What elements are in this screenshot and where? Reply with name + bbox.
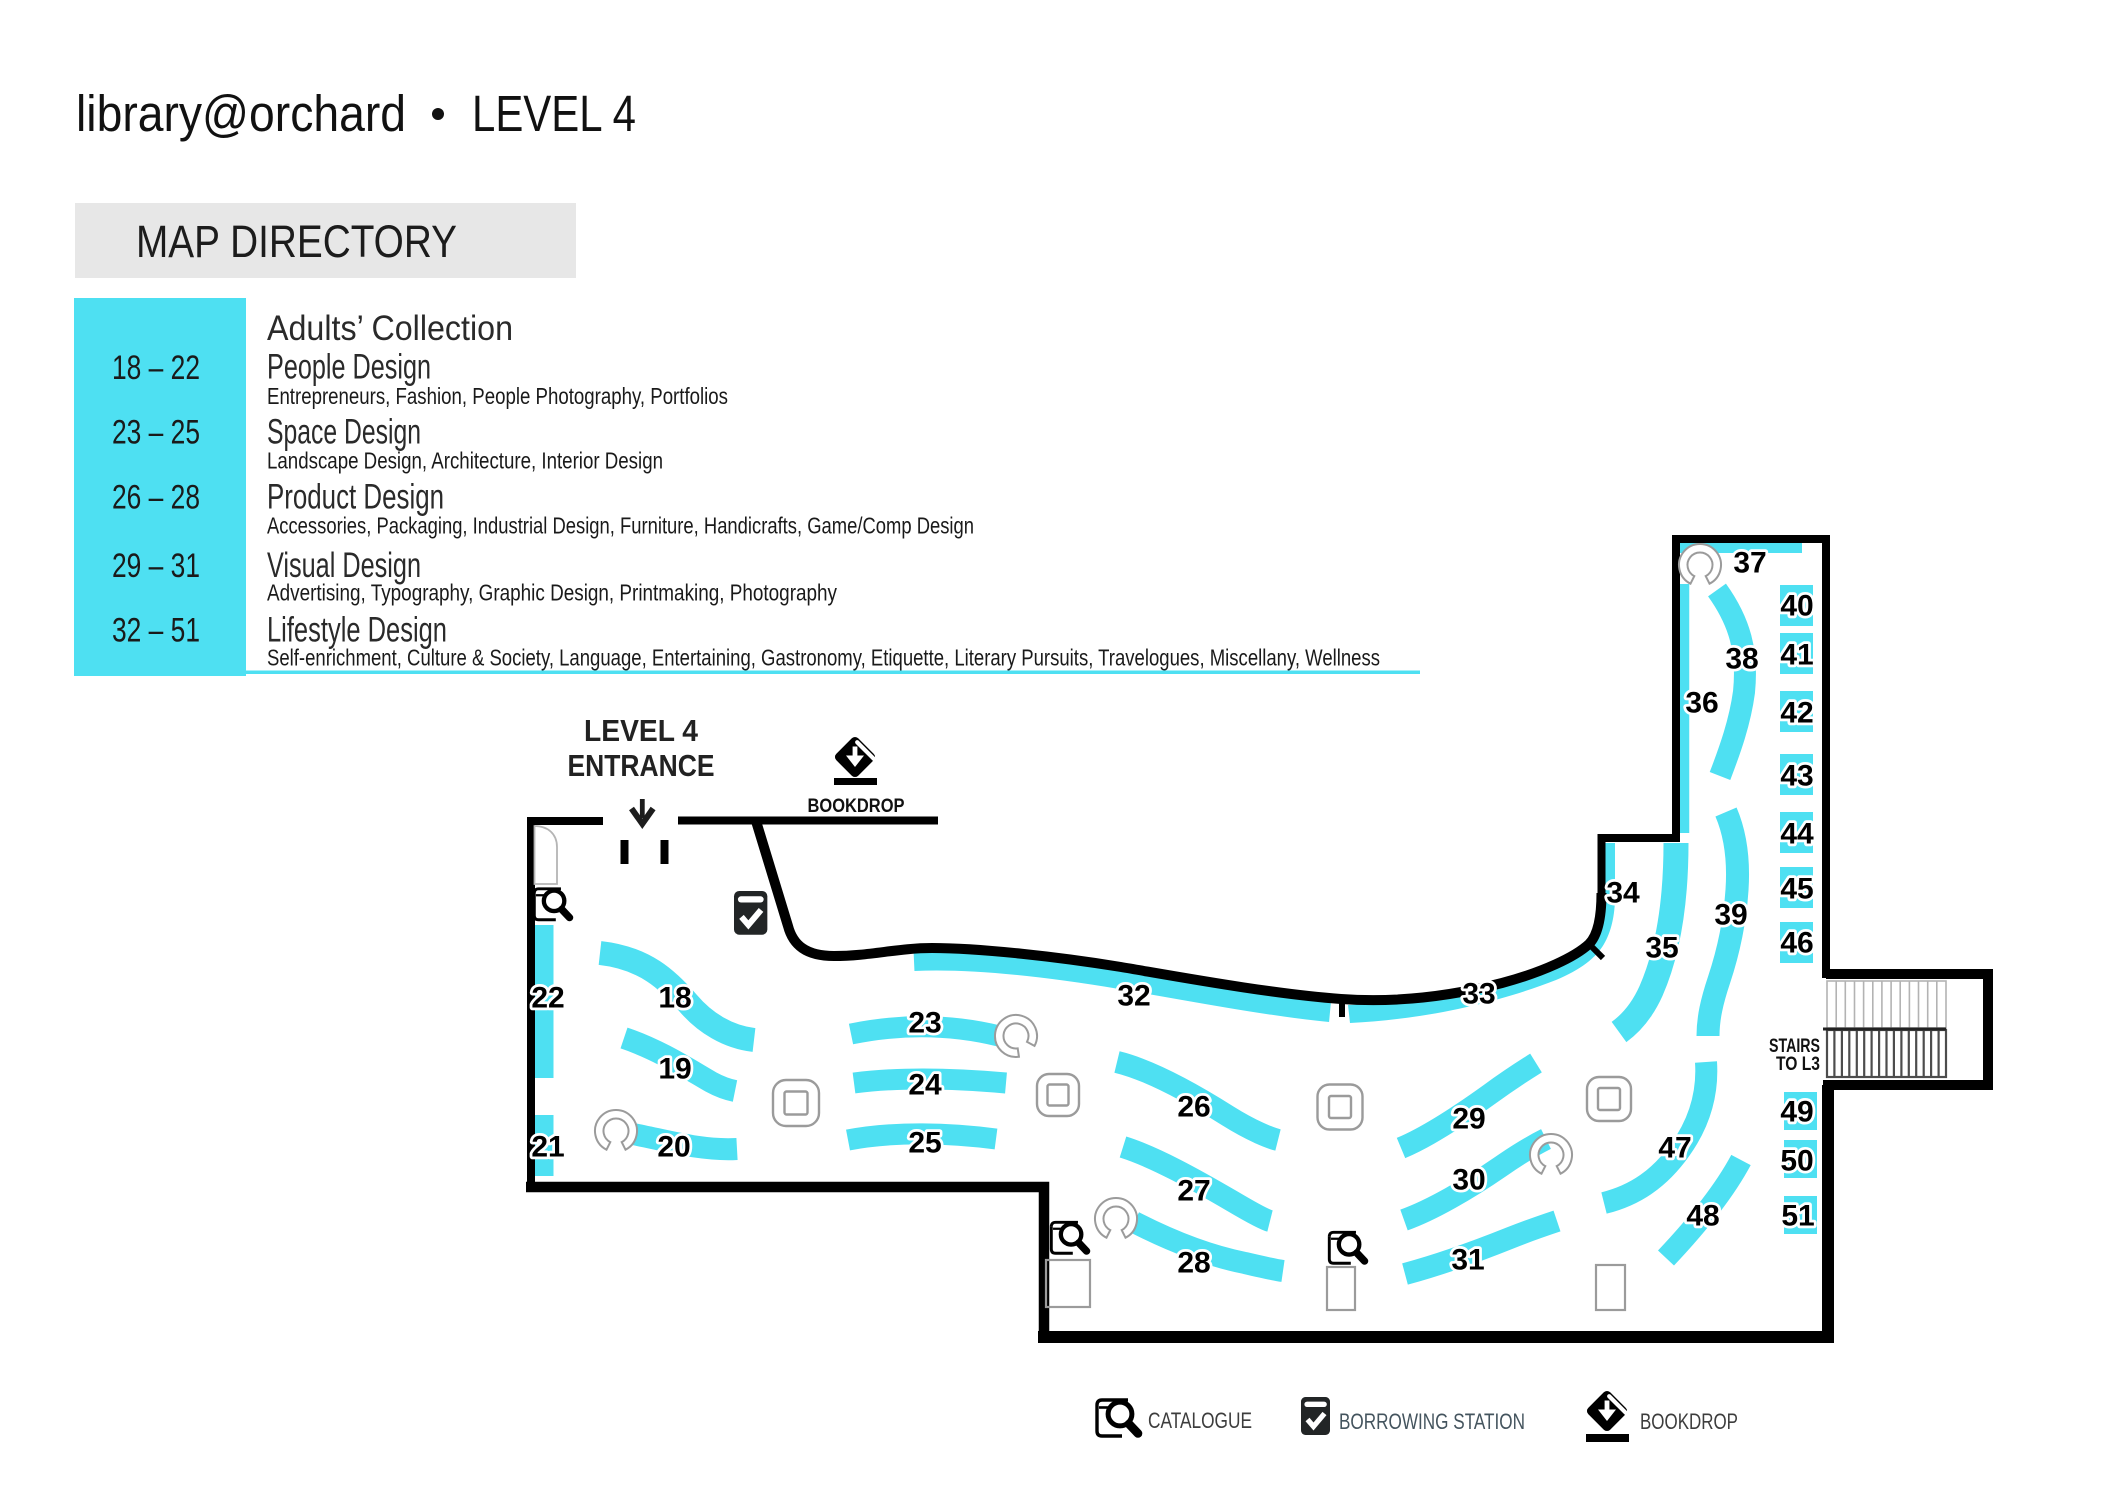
svg-text:41: 41 (1780, 639, 1813, 672)
svg-text:BORROWING STATION: BORROWING STATION (1339, 1409, 1525, 1434)
svg-text:29: 29 (1452, 1103, 1485, 1136)
svg-text:TO L3: TO L3 (1776, 1053, 1820, 1075)
svg-text:47: 47 (1658, 1132, 1691, 1165)
svg-text:21: 21 (531, 1131, 564, 1164)
svg-text:42: 42 (1780, 697, 1813, 730)
svg-text:45: 45 (1780, 873, 1813, 906)
svg-text:Advertising, Typography, Graph: Advertising, Typography, Graphic Design,… (267, 580, 837, 606)
svg-text:26: 26 (1177, 1091, 1210, 1124)
svg-text:18: 18 (658, 982, 691, 1015)
svg-text:39: 39 (1714, 899, 1747, 932)
svg-text:19: 19 (658, 1053, 691, 1086)
svg-text:ENTRANCE: ENTRANCE (568, 748, 715, 783)
svg-text:36: 36 (1685, 687, 1718, 720)
svg-text:Space Design: Space Design (267, 413, 421, 452)
svg-text:35: 35 (1645, 932, 1678, 965)
svg-text:30: 30 (1452, 1164, 1485, 1197)
svg-text:34: 34 (1606, 877, 1640, 910)
svg-text:Self-enrichment, Culture & Soc: Self-enrichment, Culture & Society, Lang… (267, 645, 1380, 671)
svg-text:23 – 25: 23 – 25 (112, 414, 200, 452)
svg-text:20: 20 (657, 1131, 690, 1164)
svg-text:40: 40 (1780, 590, 1813, 623)
svg-text:38: 38 (1725, 643, 1758, 676)
svg-text:CATALOGUE: CATALOGUE (1148, 1408, 1252, 1433)
svg-text:23: 23 (908, 1007, 941, 1040)
svg-text:People Design: People Design (267, 348, 431, 387)
svg-text:18 – 22: 18 – 22 (112, 349, 200, 387)
svg-text:33: 33 (1462, 978, 1495, 1011)
svg-text:32: 32 (1117, 980, 1150, 1013)
svg-text:MAP DIRECTORY: MAP DIRECTORY (136, 216, 457, 267)
svg-text:LEVEL 4: LEVEL 4 (472, 85, 636, 142)
svg-text:Adults’ Collection: Adults’ Collection (267, 309, 513, 348)
svg-text:46: 46 (1780, 927, 1813, 960)
svg-text:37: 37 (1733, 547, 1766, 580)
svg-text:library@orchard: library@orchard (76, 85, 406, 142)
svg-text:BOOKDROP: BOOKDROP (1640, 1409, 1738, 1434)
svg-text:26 – 28: 26 – 28 (112, 479, 200, 517)
svg-text:28: 28 (1177, 1247, 1210, 1280)
svg-text:Entrepreneurs, Fashion, People: Entrepreneurs, Fashion, People Photograp… (267, 383, 728, 409)
svg-text:50: 50 (1780, 1145, 1813, 1178)
svg-text:22: 22 (531, 982, 564, 1015)
svg-text:51: 51 (1781, 1200, 1814, 1233)
svg-text:27: 27 (1177, 1175, 1210, 1208)
svg-text:29 – 31: 29 – 31 (112, 547, 200, 585)
svg-text:32 – 51: 32 – 51 (112, 612, 200, 650)
svg-text:24: 24 (908, 1069, 942, 1102)
svg-text:Landscape Design, Architecture: Landscape Design, Architecture, Interior… (267, 448, 663, 474)
svg-text:BOOKDROP: BOOKDROP (808, 796, 905, 817)
svg-text:LEVEL 4: LEVEL 4 (584, 713, 699, 748)
svg-text:44: 44 (1780, 818, 1814, 851)
svg-text:43: 43 (1780, 760, 1813, 793)
svg-text:48: 48 (1686, 1200, 1719, 1233)
svg-text:Product Design: Product Design (267, 478, 444, 517)
svg-text:25: 25 (908, 1127, 941, 1160)
svg-text:31: 31 (1451, 1244, 1484, 1277)
svg-text:49: 49 (1780, 1096, 1813, 1129)
svg-text:Accessories, Packaging, Indust: Accessories, Packaging, Industrial Desig… (267, 513, 974, 539)
